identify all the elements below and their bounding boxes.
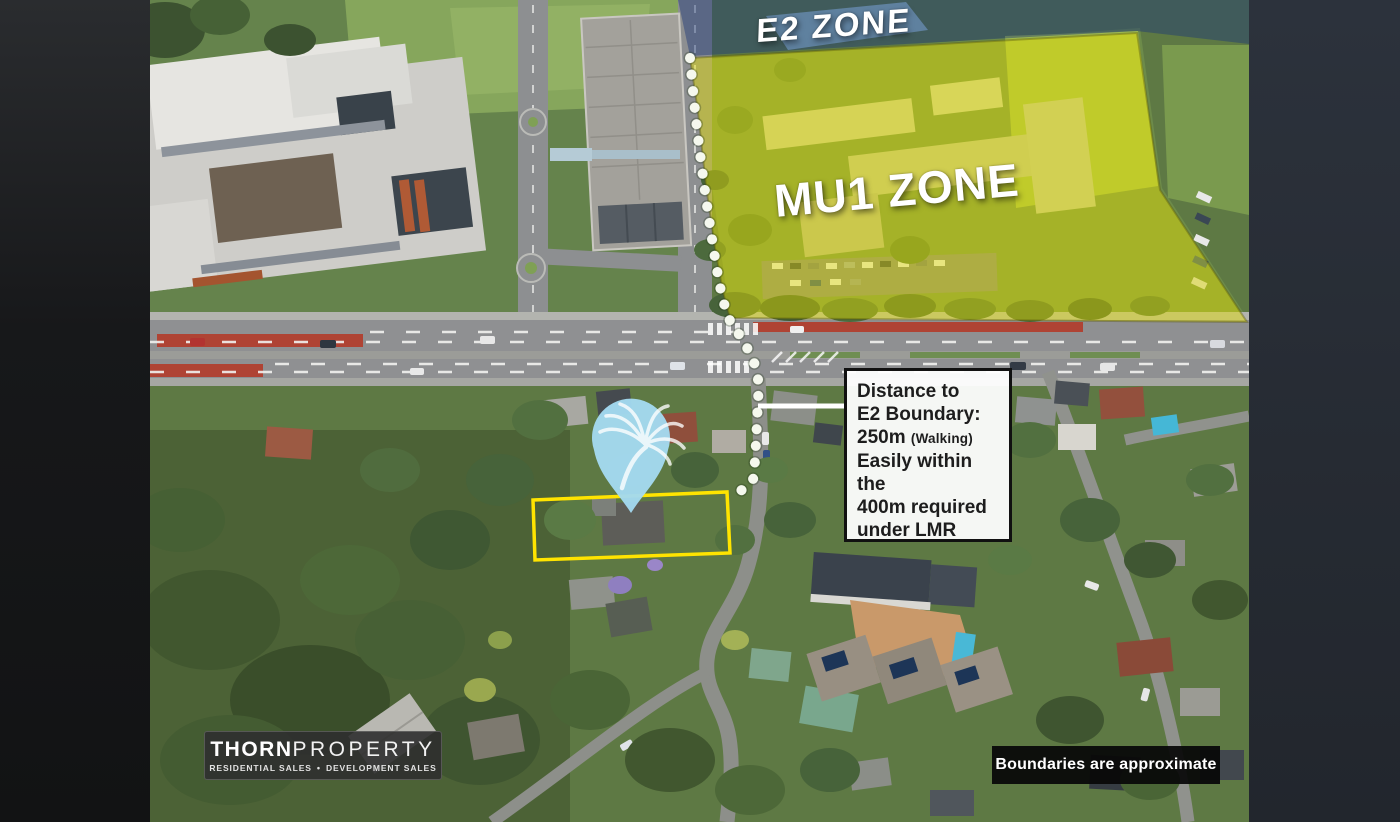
callout-line: Distance to bbox=[857, 380, 999, 403]
callout-line: 400m required bbox=[857, 496, 999, 519]
distance-value: 250m bbox=[857, 427, 906, 448]
callout-line: under LMR bbox=[857, 519, 999, 542]
callout-line: Easily within the bbox=[857, 450, 999, 496]
agency-tagline: RESIDENTIAL SALES•DEVELOPMENT SALES bbox=[209, 763, 436, 773]
tagline-separator-dot: • bbox=[317, 763, 321, 773]
distance-note: (Walking) bbox=[911, 431, 973, 446]
callout-line: 250m (Walking) bbox=[857, 426, 999, 450]
tagline-right: DEVELOPMENT SALES bbox=[326, 763, 437, 773]
aerial-marketing-image: E2 ZONE MU1 ZONE Distance to E2 Boundary… bbox=[0, 0, 1400, 822]
agency-name-light: PROPERTY bbox=[293, 738, 436, 761]
callout-line: E2 Boundary: bbox=[857, 403, 999, 426]
agency-name-bold: THORN bbox=[210, 738, 292, 761]
agency-logo: THORNPROPERTY RESIDENTIAL SALES•DEVELOPM… bbox=[204, 731, 442, 780]
distance-callout-box: Distance to E2 Boundary: 250m (Walking) … bbox=[844, 368, 1012, 542]
aerial-scene bbox=[150, 0, 1249, 822]
letterbox-left bbox=[0, 0, 150, 822]
aerial-photo bbox=[150, 0, 1249, 822]
tagline-left: RESIDENTIAL SALES bbox=[209, 763, 312, 773]
agency-name: THORNPROPERTY bbox=[210, 739, 435, 761]
disclaimer-box: Boundaries are approximate bbox=[992, 746, 1220, 784]
letterbox-right bbox=[1249, 0, 1400, 822]
